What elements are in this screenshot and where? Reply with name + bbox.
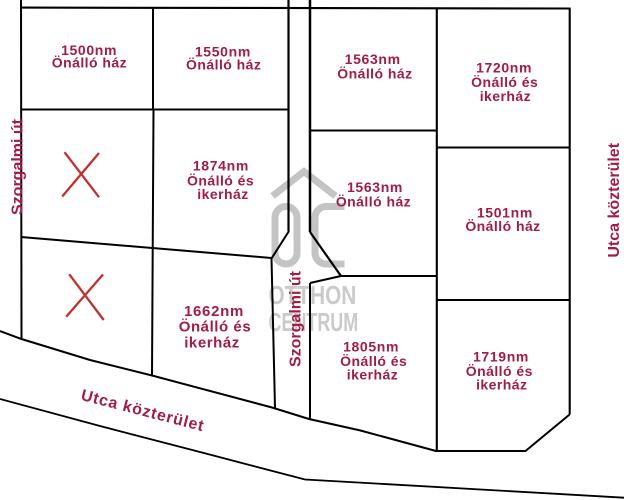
svg-text:Utca közterület: Utca közterület (606, 142, 623, 257)
svg-text:1719nm: 1719nm (473, 348, 529, 364)
svg-text:ikerház: ikerház (480, 88, 531, 104)
svg-text:1563nm: 1563nm (345, 51, 401, 67)
svg-text:ikerház: ikerház (184, 335, 240, 352)
svg-text:ikerház: ikerház (197, 186, 248, 202)
svg-text:ikerház: ikerház (476, 376, 527, 392)
svg-text:Önálló ház: Önálló ház (186, 57, 261, 73)
svg-text:ikerház: ikerház (347, 367, 398, 383)
svg-text:Önálló és: Önálló és (179, 319, 251, 336)
svg-text:Szorgalmi út: Szorgalmi út (288, 270, 305, 367)
svg-text:CENTRUM: CENTRUM (269, 308, 359, 337)
svg-text:Önálló ház: Önálló ház (337, 66, 412, 82)
svg-text:OTTHON: OTTHON (269, 281, 357, 310)
svg-text:Szorgalmi út: Szorgalmi út (9, 118, 26, 215)
svg-text:Önálló ház: Önálló ház (336, 193, 411, 209)
svg-text:1662nm: 1662nm (184, 303, 244, 320)
svg-text:Önálló ház: Önálló ház (52, 55, 127, 71)
svg-text:Önálló ház: Önálló ház (465, 218, 540, 234)
svg-text:1874nm: 1874nm (193, 158, 249, 174)
